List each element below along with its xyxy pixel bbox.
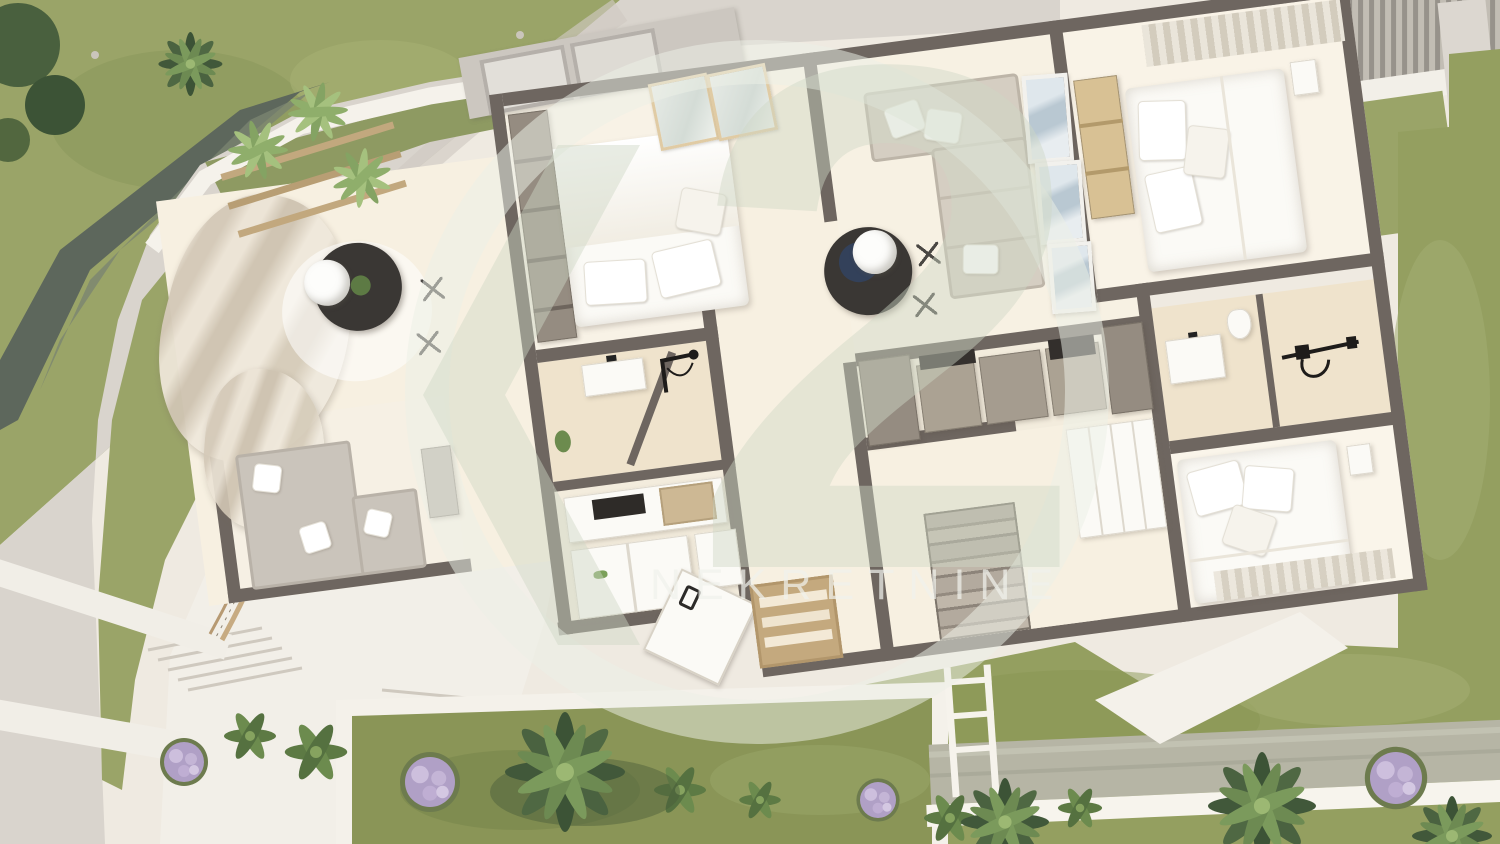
storage-box — [659, 481, 717, 526]
hall-closet — [1066, 418, 1168, 539]
shower-1 — [655, 342, 721, 399]
wood-stair — [749, 574, 843, 668]
wire-chair — [416, 331, 441, 356]
bed-2 — [1125, 68, 1308, 272]
wire-chair — [913, 293, 938, 318]
wall-art — [1035, 160, 1087, 245]
cooktop — [592, 493, 646, 520]
nightstand — [1290, 59, 1320, 96]
blanket — [675, 187, 728, 237]
nightstand — [1346, 443, 1374, 476]
tree — [25, 75, 85, 135]
kitchen-counter — [978, 349, 1048, 425]
washbasin-2 — [1165, 334, 1226, 385]
stair-landing — [1022, 552, 1100, 629]
lounge-sofa — [235, 440, 368, 590]
blanket — [1183, 125, 1230, 179]
staircase — [923, 502, 1031, 641]
pillow — [252, 463, 283, 494]
wall-art — [1047, 241, 1096, 314]
herb-pot — [593, 570, 608, 580]
wire-chair — [420, 277, 445, 302]
pillow — [583, 258, 648, 306]
door-handle — [678, 584, 702, 611]
pillow — [962, 244, 998, 274]
pillow — [1138, 100, 1188, 161]
pillow — [362, 508, 393, 539]
pillow — [651, 238, 722, 299]
pillow — [1241, 465, 1294, 513]
bed-1 — [553, 126, 750, 327]
kitchen-tall-cabinet — [858, 354, 921, 446]
pillow — [923, 108, 963, 145]
wall-art — [1021, 73, 1074, 164]
floor-plan-render: 2 NEKRETNINE — [0, 0, 1500, 844]
wire-chair — [916, 242, 941, 267]
